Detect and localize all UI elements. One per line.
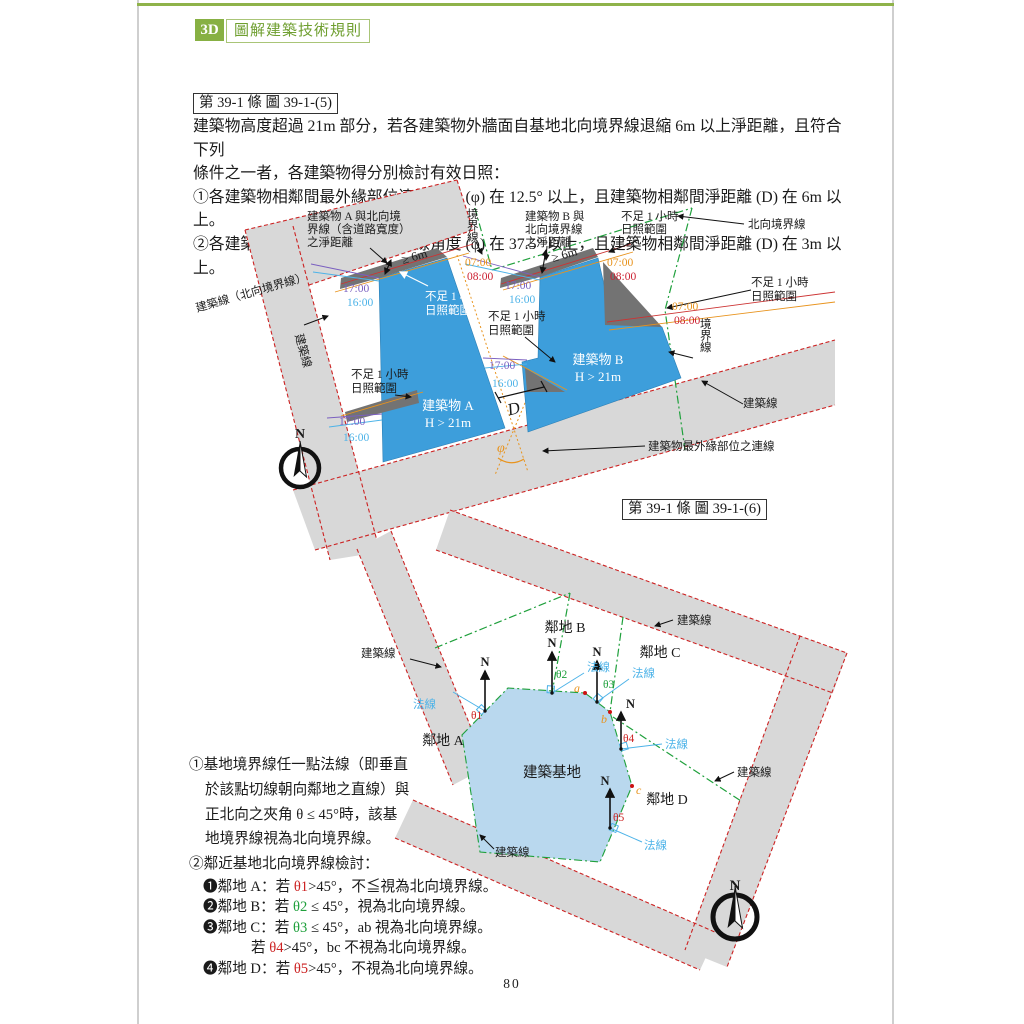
section1-title-box: 第 39-1 條 圖 39-1-(5): [193, 93, 338, 114]
note-line: 於該點切線朝向鄰地之直線）與: [189, 778, 561, 803]
label-insufficient-right-part1: 不足 1 小時: [751, 276, 809, 289]
time-1700-a2: 17:00: [339, 416, 365, 428]
label-dist-a-part2: 界線（含道路寬度）: [307, 222, 411, 236]
label-boundary-top-part3: 線: [467, 230, 479, 244]
time-1700-b: 17:00: [505, 280, 531, 292]
label-insufficient-on-a-part1: 不足 1 小時: [425, 290, 483, 303]
label-boundary-top-part2: 界: [467, 220, 479, 233]
note-subitem-b: ❷鄰地 B：若 θ2 ≤ 45°，視為北向境界線。: [189, 897, 561, 917]
header-book-title: 圖解建築技術規則: [226, 19, 370, 43]
page-number: 80: [0, 976, 1024, 992]
note-item2-title: ②鄰近基地北向境界線檢討：: [189, 852, 561, 877]
diagram-sunlight-buildings: 建築物 A 與北向境界線（含道路寬度）之淨距離境界線建築物 B 與北向境界線之淨…: [195, 200, 840, 515]
note-line: 正北向之夾角 θ ≤ 45°時，該基: [189, 803, 561, 828]
label-insufficient-top-right-part1: 不足 1 小時: [621, 210, 679, 223]
label-insufficient-on-a-part2: 日照範圍: [425, 303, 471, 317]
time-0800-b: 08:00: [610, 271, 636, 283]
north-1: N: [480, 655, 489, 669]
label-north-boundary: 北向境界線: [748, 217, 806, 231]
theta3-ref: θ3: [293, 920, 307, 936]
label-building-line-top: 建築線: [677, 613, 712, 627]
compass2-n: N: [730, 878, 741, 894]
theta-2: θ2: [556, 669, 568, 681]
label-building-a-part2: H > 21m: [425, 415, 471, 430]
label-angle-phi: φ: [497, 441, 505, 456]
label-dist-b-part2: 北向境界線: [525, 222, 583, 236]
label-plot-b: 鄰地 B: [545, 620, 586, 636]
label-dist-a-part3: 之淨距離: [307, 235, 353, 249]
label-boundary-right-part2: 界: [700, 330, 712, 343]
time-0800-a: 08:00: [467, 271, 493, 283]
note-line: ①基地境界線任一點法線（即垂直: [189, 753, 561, 778]
theta-1: θ1: [471, 710, 483, 722]
body-line: 條件之一者，各建築物得分別檢討有效日照：: [193, 162, 849, 186]
time-1600-a: 16:00: [347, 297, 373, 309]
theta2-ref: θ2: [293, 899, 307, 915]
point-b: b: [601, 712, 607, 726]
note-line: 地境界線視為北向境界線。: [189, 827, 561, 852]
body-line: 建築物高度超過 21m 部分，若各建築物外牆面自基地北向境界線退縮 6m 以上淨…: [193, 115, 849, 162]
label-building-b-part1: 建築物 B: [573, 352, 624, 367]
label-distance-d: D: [504, 398, 522, 420]
label-insufficient-left-part1: 不足 1 小時: [351, 368, 409, 381]
theta5-ref: θ5: [294, 961, 308, 977]
label-building-a-part1: 建築物 A: [422, 398, 474, 413]
header-green-rule: [137, 3, 894, 6]
label-outer-edge-line: 建築物最外緣部位之連線: [648, 439, 775, 453]
north-3: N: [592, 645, 601, 659]
label-building-line-right: 建築線: [737, 765, 772, 779]
label-plot-d: 鄰地 D: [646, 792, 688, 808]
theta-5: θ5: [613, 812, 625, 824]
label-dist-a-part1: 建築物 A 與北向境: [307, 209, 401, 223]
note-subitem-a: ❶鄰地 A：若 θ1>45°，不≦視為北向境界線。: [189, 877, 561, 897]
time-1600-a2: 16:00: [343, 432, 369, 444]
label-building-line-left: 建築線: [361, 646, 396, 660]
label-boundary-top-part1: 境: [467, 207, 479, 221]
page-right-edge: [892, 0, 894, 1024]
north-2: N: [547, 636, 556, 650]
time-0700-right: 07:00: [672, 301, 698, 313]
page-left-edge: [137, 0, 139, 1024]
theta-3: θ3: [603, 679, 615, 691]
label-insufficient-mid-part2: 日照範圍: [488, 323, 534, 337]
time-1700-a: 17:00: [343, 283, 369, 295]
label-insufficient-left-part2: 日照範圍: [351, 381, 397, 395]
label-plot-a: 鄰地 A: [422, 733, 464, 749]
label-building-line-right: 建築線: [743, 396, 778, 410]
label-insufficient-top-right-part2: 日照範圍: [621, 222, 667, 236]
north-4: N: [626, 697, 635, 711]
label-insufficient-mid-part1: 不足 1 小時: [488, 310, 546, 323]
theta1-ref: θ1: [294, 879, 308, 895]
time-0700-b: 07:00: [607, 257, 633, 269]
book-page: { "header": {"badge": "3D", "title": "圖解…: [0, 0, 1024, 1024]
normal-4: 法線: [665, 737, 688, 751]
theta4-ref: θ4: [269, 940, 283, 956]
time-1600-b: 16:00: [509, 294, 535, 306]
header-3d-badge: 3D: [195, 19, 224, 41]
label-dist-b-part1: 建築物 B 與: [525, 209, 584, 223]
time-1700-bn: 17:00: [489, 360, 515, 372]
building-a: [379, 258, 505, 462]
time-0700-a: 07:00: [465, 257, 491, 269]
theta-4: θ4: [623, 733, 635, 745]
time-0800-right: 08:00: [674, 315, 700, 327]
note-subitem-c1: ❸鄰地 C：若 θ3 ≤ 45°，ab 視為北向境界線。: [189, 918, 561, 938]
normal-1: 法線: [413, 697, 436, 711]
north-5: N: [600, 774, 609, 788]
label-insufficient-right-part2: 日照範圍: [751, 289, 797, 303]
normal-2: 法線: [587, 660, 610, 674]
note-subitem-c2: 若 θ4>45°，bc 不視為北向境界線。: [189, 938, 561, 958]
label-building-b-part2: H > 21m: [575, 369, 621, 384]
label-plot-c: 鄰地 C: [640, 645, 681, 661]
notes-block: ①基地境界線任一點法線（即垂直 於該點切線朝向鄰地之直線）與 正北向之夾角 θ …: [189, 753, 561, 979]
point-a: a: [574, 681, 580, 695]
label-boundary-right-part1: 境: [700, 317, 712, 331]
compass1-n: N: [295, 427, 305, 442]
point-c: c: [636, 783, 642, 797]
normal-5: 法線: [644, 838, 667, 852]
label-boundary-right-part3: 線: [700, 340, 712, 354]
normal-3: 法線: [632, 666, 655, 680]
time-1600-bn: 16:00: [492, 378, 518, 390]
